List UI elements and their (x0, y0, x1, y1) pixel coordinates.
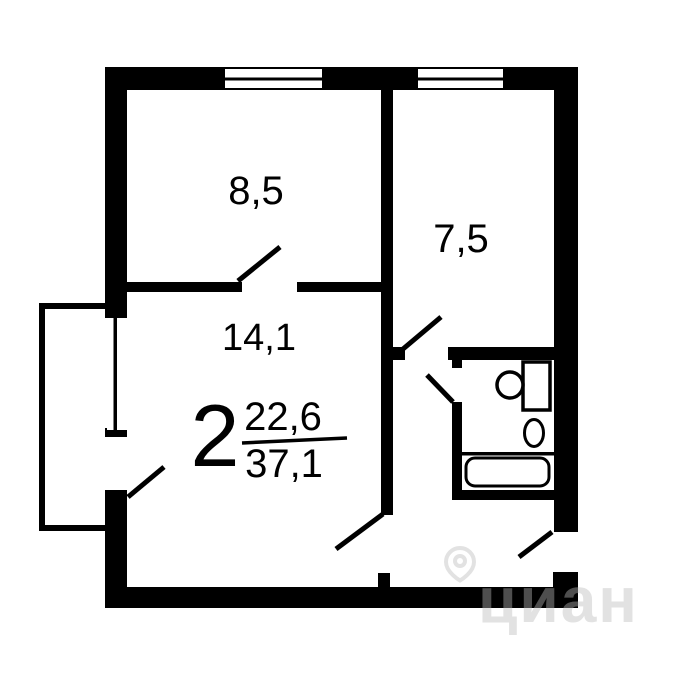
outer-wall-right (554, 67, 578, 532)
outer-wall-left-upper (105, 67, 127, 318)
window-top-left (225, 69, 322, 88)
room-area-label-top-right: 7,5 (433, 219, 489, 259)
door-swing-entrance (519, 532, 552, 557)
interior-wall-h-right (297, 282, 381, 292)
window-top-right (418, 69, 503, 88)
bathtub-edge (462, 452, 554, 456)
sink (497, 362, 550, 410)
door-swing-bathroom (427, 375, 453, 402)
bathroom-wall-top (448, 347, 554, 360)
sink-bowl (497, 372, 523, 398)
door-swing-room-top-right (403, 317, 441, 349)
balcony-edge-top (39, 303, 107, 309)
floor-plan: 8,5 7,5 14,1 2 22,6 37,1 циан (0, 0, 700, 700)
map-pin-hole (455, 556, 465, 566)
door-jamb-hall (378, 573, 390, 587)
balcony-edge-left (39, 303, 45, 531)
bathroom-wall-bottom (452, 490, 554, 500)
bathtub (462, 452, 554, 486)
bathroom-door-jamb (452, 360, 462, 368)
rooms-count-label: 2 (191, 392, 240, 480)
window-frame-line (225, 78, 322, 81)
window-frame-line (418, 78, 503, 81)
balcony (39, 303, 107, 531)
door-swing-room-top-left (238, 247, 280, 281)
watermark-logo-text: циан (478, 568, 639, 632)
door-swing-balcony (128, 467, 164, 497)
door-swing-main-room (336, 514, 383, 549)
total-area-label: 37,1 (245, 444, 323, 484)
map-pin-icon (446, 548, 474, 581)
room-area-label-main: 14,1 (222, 319, 296, 357)
outer-wall-top (105, 67, 578, 90)
room-area-label-top-left: 8,5 (228, 171, 284, 211)
living-area-label: 22,6 (244, 397, 322, 437)
window-frame-line (114, 318, 118, 430)
balcony-window (107, 318, 127, 430)
balcony-edge-bottom (39, 525, 107, 531)
bathtub-basin (466, 458, 549, 486)
bathroom-wall-left (452, 402, 462, 500)
toilet (525, 420, 544, 447)
interior-wall-vertical (381, 90, 393, 515)
interior-wall-h-left (127, 282, 242, 292)
sink-counter (523, 362, 550, 410)
